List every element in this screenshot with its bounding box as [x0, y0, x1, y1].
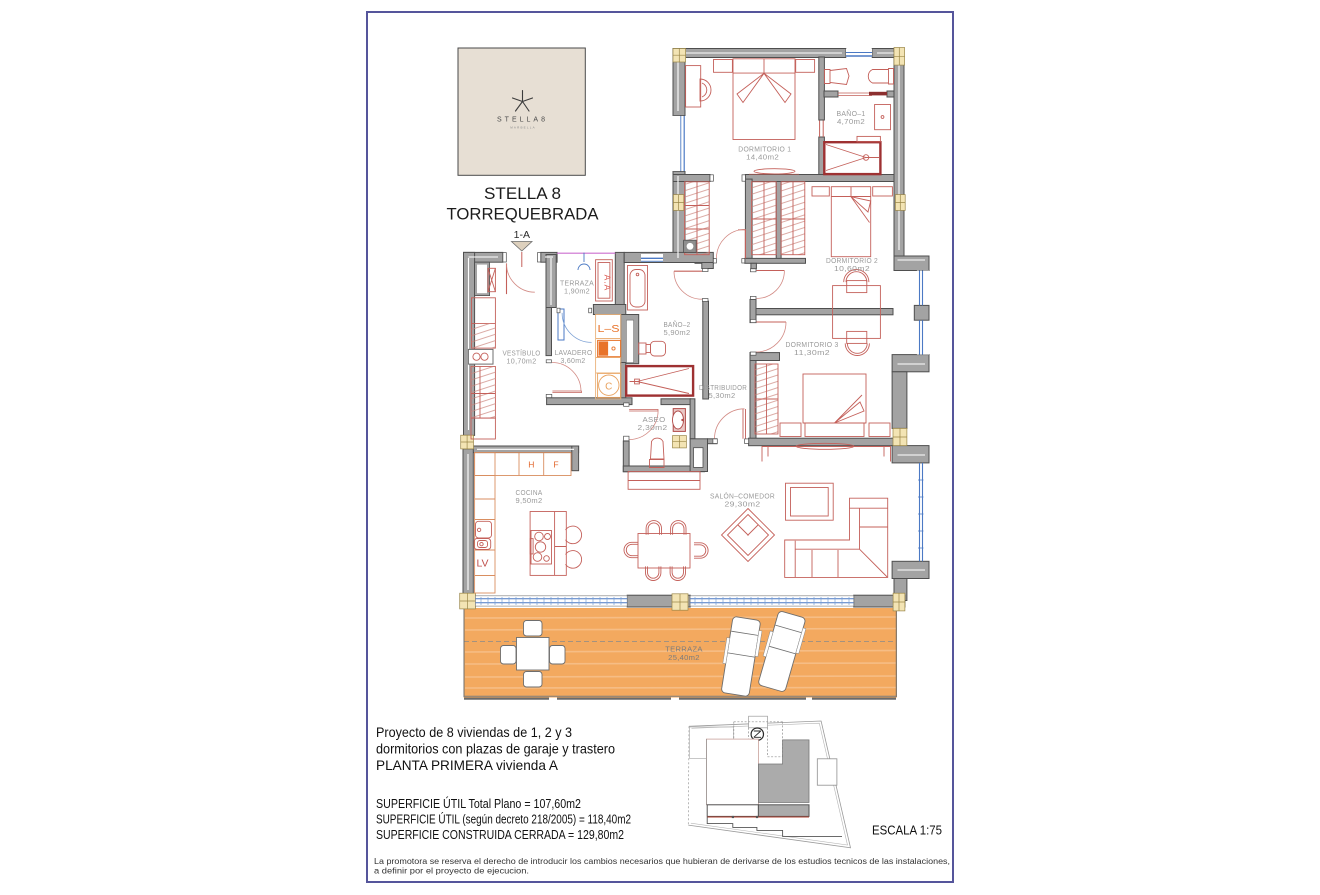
- svg-text:SUPERFICIE CONSTRUIDA CERRADA: SUPERFICIE CONSTRUIDA CERRADA = 129,80m2: [376, 828, 624, 842]
- svg-text:a definir por el proyecto de e: a definir por el proyecto de ejecucion.: [374, 867, 529, 876]
- svg-text:F: F: [553, 460, 558, 470]
- svg-text:11,30m2: 11,30m2: [794, 348, 830, 357]
- svg-text:14,40m2: 14,40m2: [746, 153, 779, 162]
- svg-text:H: H: [528, 460, 534, 470]
- svg-text:A.A: A.A: [603, 275, 613, 292]
- svg-text:STELLA 8: STELLA 8: [484, 185, 561, 203]
- svg-text:1,90m2: 1,90m2: [564, 287, 590, 296]
- svg-text:2,30m2: 2,30m2: [638, 423, 668, 432]
- svg-text:10,70m2: 10,70m2: [507, 357, 537, 366]
- svg-text:ESCALA 1:75: ESCALA 1:75: [872, 824, 942, 838]
- svg-text:dormitorios con plazas de gara: dormitorios con plazas de garaje y trast…: [376, 741, 615, 757]
- svg-text:29,30m2: 29,30m2: [725, 500, 761, 509]
- svg-text:10,60m2: 10,60m2: [834, 264, 870, 273]
- svg-text:SUPERFICIE ÚTIL Total Plano =: SUPERFICIE ÚTIL Total Plano = 107,60m2: [376, 796, 581, 811]
- svg-text:TORREQUEBRADA: TORREQUEBRADA: [447, 206, 599, 224]
- svg-text:3,60m2: 3,60m2: [561, 356, 586, 365]
- svg-text:L–S: L–S: [598, 324, 620, 335]
- svg-text:SUPERFICIE ÚTIL (según decreto: SUPERFICIE ÚTIL (según decreto 218/2005)…: [376, 812, 631, 827]
- svg-text:5,90m2: 5,90m2: [664, 328, 691, 337]
- svg-text:C: C: [605, 382, 612, 393]
- svg-text:9,50m2: 9,50m2: [516, 496, 543, 505]
- svg-text:PLANTA PRIMERA vivienda A: PLANTA PRIMERA vivienda A: [376, 757, 559, 773]
- svg-text:5,30m2: 5,30m2: [709, 391, 736, 400]
- svg-text:4,70m2: 4,70m2: [837, 117, 865, 126]
- svg-text:La promotora se reserva el der: La promotora se reserva el derecho de in…: [374, 857, 950, 866]
- svg-text:1-A: 1-A: [514, 229, 530, 241]
- svg-text:25,40m2: 25,40m2: [668, 653, 700, 662]
- svg-text:MARBELLA: MARBELLA: [510, 126, 536, 130]
- svg-text:LV: LV: [476, 558, 488, 570]
- svg-text:STELLA8: STELLA8: [497, 117, 548, 124]
- svg-text:Proyecto de 8 viviendas de 1,: Proyecto de 8 viviendas de 1, 2 y 3: [376, 724, 572, 740]
